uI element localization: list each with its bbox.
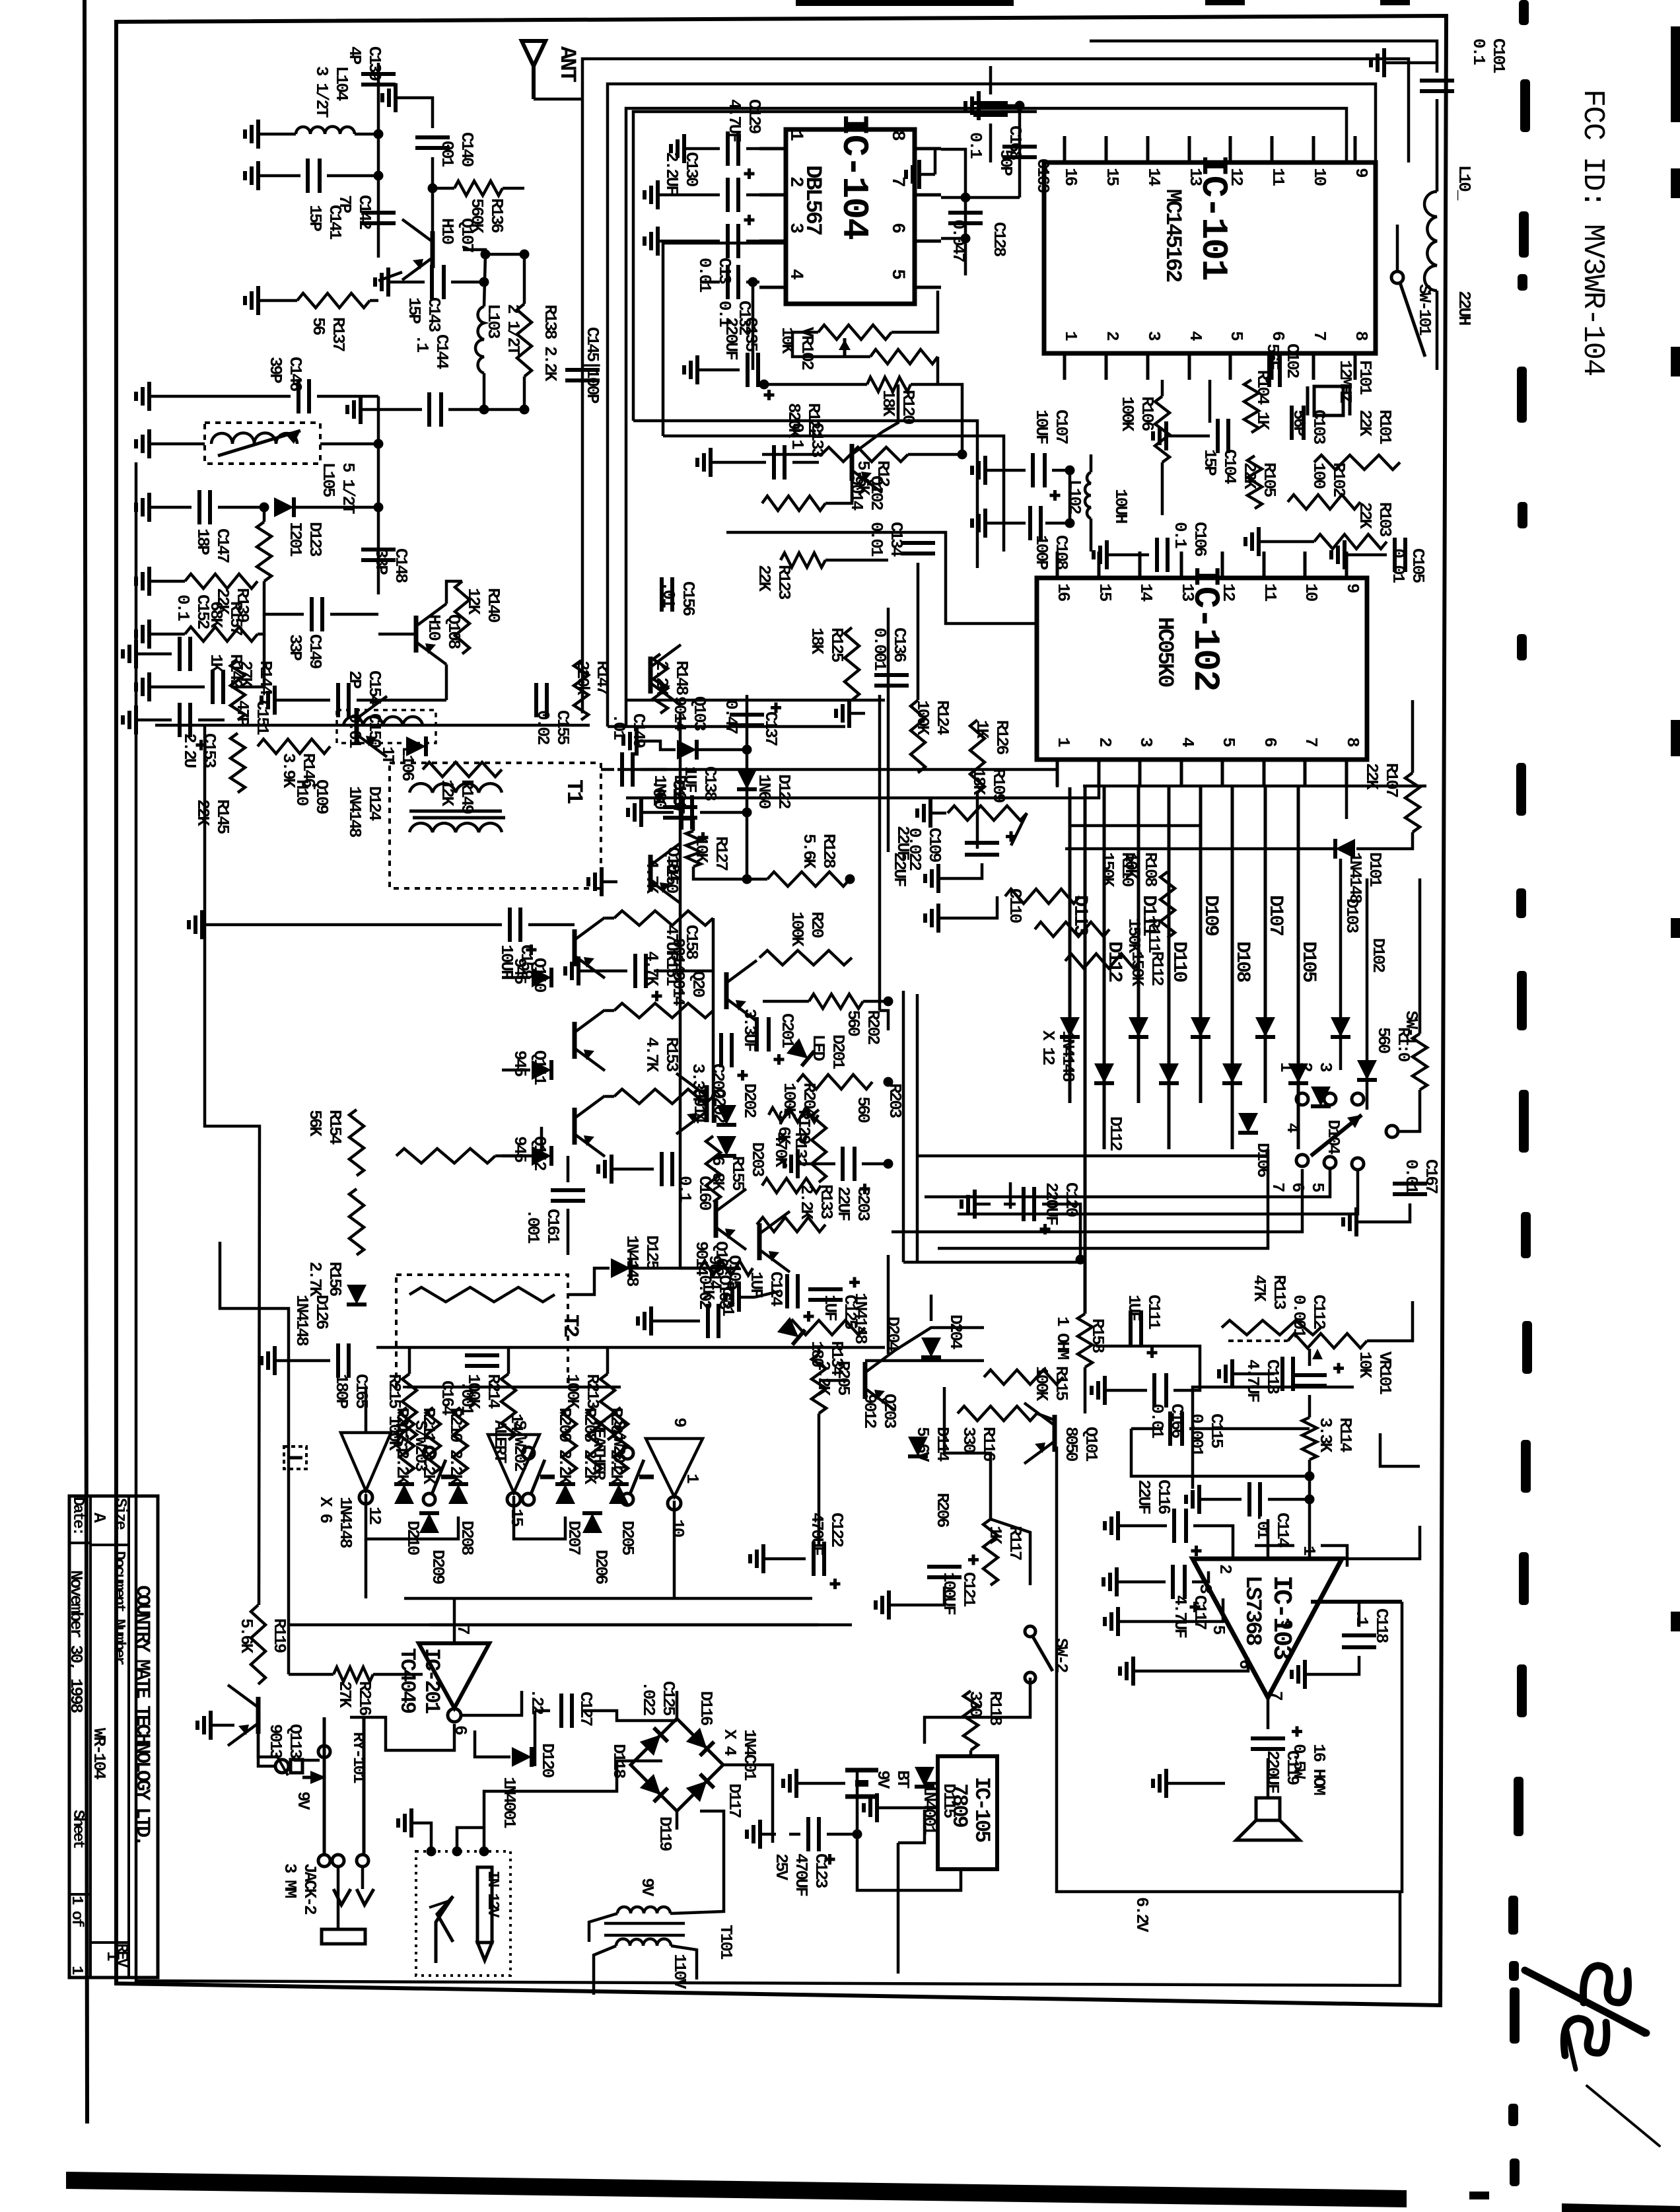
svg-text:H10: H10 bbox=[437, 218, 457, 244]
svg-text:C120: C120 bbox=[1061, 1182, 1081, 1217]
svg-text:R137: R137 bbox=[328, 317, 348, 351]
svg-text:C140: C140 bbox=[457, 132, 477, 167]
svg-text:TC4049: TC4049 bbox=[395, 1648, 419, 1713]
svg-text:16: 16 bbox=[1053, 583, 1073, 602]
svg-text:Q112: Q112 bbox=[530, 1136, 549, 1171]
svg-text:R153: R153 bbox=[662, 1037, 682, 1072]
svg-text:10UF: 10UF bbox=[1032, 410, 1051, 445]
svg-text:2P: 2P bbox=[345, 670, 365, 689]
svg-text:R156: R156 bbox=[325, 1262, 345, 1297]
svg-text:Q110: Q110 bbox=[530, 958, 549, 993]
svg-text:3.3K: 3.3K bbox=[1315, 1417, 1335, 1453]
svg-text:470UF: 470UF bbox=[807, 1513, 827, 1555]
svg-text:.001: .001 bbox=[523, 1209, 543, 1244]
svg-text:100UF: 100UF bbox=[939, 1572, 959, 1615]
svg-text:47K: 47K bbox=[1249, 1275, 1269, 1302]
svg-text:D126: D126 bbox=[312, 1295, 332, 1330]
svg-text:470UF: 470UF bbox=[791, 1853, 811, 1896]
svg-text:C134: C134 bbox=[886, 522, 906, 557]
svg-text:945: 945 bbox=[510, 1050, 530, 1077]
svg-text:33P: 33P bbox=[285, 634, 305, 660]
svg-text:R119: R119 bbox=[269, 1618, 289, 1653]
svg-text:33P: 33P bbox=[371, 548, 391, 575]
svg-text:5.6V: 5.6V bbox=[913, 1427, 932, 1462]
svg-text:R208 2.2K: R208 2.2K bbox=[580, 1408, 600, 1485]
svg-text:LS7368: LS7368 bbox=[1240, 1575, 1265, 1645]
svg-text:5.6K: 5.6K bbox=[236, 1618, 256, 1654]
svg-text:R216: R216 bbox=[355, 1681, 374, 1716]
svg-text:10K: 10K bbox=[1355, 1351, 1375, 1378]
svg-text:November 30, 1998: November 30, 1998 bbox=[66, 1570, 86, 1713]
svg-text:4: 4 bbox=[785, 269, 806, 279]
svg-text:12MHZ: 12MHZ bbox=[1335, 360, 1355, 403]
svg-text:D110: D110 bbox=[1168, 941, 1190, 982]
svg-text:C154: C154 bbox=[365, 670, 384, 705]
svg-text:Q20: Q20 bbox=[688, 971, 708, 997]
svg-text:330: 330 bbox=[959, 1427, 979, 1453]
svg-text:16: 16 bbox=[1061, 168, 1080, 186]
svg-text:4.7UF: 4.7UF bbox=[1243, 1359, 1263, 1402]
svg-text:22K: 22K bbox=[1240, 462, 1259, 489]
svg-text:D119: D119 bbox=[655, 1816, 675, 1851]
svg-text:15P: 15P bbox=[404, 297, 424, 324]
svg-text:IC-105: IC-105 bbox=[969, 1777, 994, 1842]
svg-text:C161: C161 bbox=[543, 1209, 563, 1244]
svg-text:D201: D201 bbox=[828, 1034, 848, 1069]
svg-text:22K: 22K bbox=[1355, 502, 1375, 529]
svg-text:C143: C143 bbox=[424, 297, 444, 332]
svg-text:C128: C128 bbox=[989, 222, 1009, 257]
svg-text:C112: C112 bbox=[1309, 1295, 1329, 1330]
svg-text:C129: C129 bbox=[744, 99, 764, 134]
svg-text:Document Number: Document Number bbox=[110, 1551, 127, 1665]
svg-text:C169: C169 bbox=[1033, 159, 1053, 194]
svg-text:D207: D207 bbox=[564, 1520, 584, 1555]
svg-text:Q106: Q106 bbox=[711, 1241, 731, 1276]
svg-text:R149: R149 bbox=[457, 779, 477, 814]
svg-text:X 12: X 12 bbox=[1038, 1030, 1058, 1065]
svg-text:4P: 4P bbox=[345, 46, 365, 65]
svg-text:R123: R123 bbox=[774, 565, 794, 600]
svg-text:C156: C156 bbox=[678, 581, 698, 616]
svg-text:R214: R214 bbox=[483, 1374, 503, 1409]
svg-text:100K: 100K bbox=[464, 1374, 483, 1409]
svg-text:C137: C137 bbox=[761, 711, 781, 746]
svg-text:Q111: Q111 bbox=[530, 1050, 549, 1085]
svg-text:9V: 9V bbox=[873, 1770, 893, 1789]
svg-text:C145|100P: C145|100P bbox=[582, 327, 602, 404]
svg-text:R211 2.2K: R211 2.2K bbox=[419, 1408, 438, 1485]
svg-text:7: 7 bbox=[1310, 331, 1329, 340]
svg-text:220UF: 220UF bbox=[1263, 1750, 1282, 1793]
svg-text:11: 11 bbox=[1260, 583, 1280, 602]
svg-text:10: 10 bbox=[1301, 583, 1321, 602]
svg-text:3 1/2T: 3 1/2T bbox=[312, 66, 332, 118]
svg-text:C117: C117 bbox=[1190, 1595, 1210, 1629]
svg-text:Q107: Q107 bbox=[457, 218, 477, 252]
svg-text:100P: 100P bbox=[1032, 535, 1051, 570]
svg-text:1N4148: 1N4148 bbox=[292, 1295, 312, 1346]
svg-text:22UF: 22UF bbox=[1134, 1480, 1154, 1515]
svg-text:0.5W: 0.5W bbox=[1289, 1744, 1309, 1779]
svg-text:R207 2.2K: R207 2.2K bbox=[606, 1408, 626, 1485]
svg-text:C106: C106 bbox=[1190, 522, 1210, 557]
svg-text:.1: .1 bbox=[412, 334, 432, 353]
svg-text:56F: 56F bbox=[1263, 343, 1282, 370]
svg-text:C136: C136 bbox=[890, 627, 909, 662]
svg-text:C138: C138 bbox=[700, 766, 720, 801]
svg-text:5.6K: 5.6K bbox=[853, 460, 873, 496]
svg-text:D123: D123 bbox=[305, 522, 325, 557]
svg-text:D109: D109 bbox=[1199, 895, 1222, 936]
svg-text:220k: 220k bbox=[573, 660, 592, 696]
svg-text:39P: 39P bbox=[265, 357, 285, 383]
svg-text:R205: R205 bbox=[833, 1361, 853, 1396]
svg-text:2.2UF: 2.2UF bbox=[662, 152, 682, 195]
svg-text:MC145162: MC145162 bbox=[1160, 189, 1185, 282]
svg-text:4.7UF: 4.7UF bbox=[724, 99, 744, 142]
svg-text:C122: C122 bbox=[827, 1513, 847, 1548]
svg-text:0.001: 0.001 bbox=[1187, 1413, 1207, 1456]
svg-text:16 HOM: 16 HOM bbox=[1309, 1744, 1329, 1795]
svg-text:0.02: 0.02 bbox=[533, 710, 553, 745]
svg-text:1N4148: 1N4148 bbox=[851, 1293, 870, 1344]
svg-text:22K: 22K bbox=[1355, 410, 1375, 437]
svg-text:56: 56 bbox=[308, 317, 328, 336]
svg-text:100: 100 bbox=[1309, 462, 1329, 489]
svg-text:R124: R124 bbox=[932, 700, 952, 735]
svg-text:6: 6 bbox=[887, 223, 907, 233]
svg-text:D106: D106 bbox=[1253, 1143, 1273, 1178]
svg-text:.1: .1 bbox=[1352, 1608, 1372, 1627]
svg-text:C127: C127 bbox=[576, 1692, 596, 1726]
svg-text:D206: D206 bbox=[591, 1550, 611, 1585]
svg-text:0.01: 0.01 bbox=[1388, 548, 1408, 583]
svg-text:4.7UF: 4.7UF bbox=[1170, 1595, 1190, 1638]
svg-text:0.01: 0.01 bbox=[695, 258, 715, 293]
svg-text:R133: R133 bbox=[816, 1184, 836, 1219]
svg-text:100K: 100K bbox=[563, 1374, 582, 1409]
svg-text:15P: 15P bbox=[305, 205, 325, 231]
svg-text:0.1: 0.1 bbox=[1170, 522, 1190, 548]
svg-text:Q113: Q113 bbox=[285, 1724, 305, 1759]
svg-text:L106: L106 bbox=[398, 746, 417, 781]
svg-text:220UF: 220UF bbox=[721, 317, 741, 360]
svg-text:IC-104: IC-104 bbox=[833, 114, 875, 239]
svg-text:D102: D102 bbox=[1368, 938, 1388, 973]
svg-text:D117: D117 bbox=[724, 1783, 744, 1818]
svg-text:HC05K0: HC05K0 bbox=[1152, 617, 1177, 687]
svg-text:D118: D118 bbox=[609, 1744, 629, 1779]
svg-text:12: 12 bbox=[365, 1507, 384, 1525]
svg-text:T1: T1 bbox=[561, 779, 586, 803]
svg-text:10: 10 bbox=[668, 1519, 687, 1538]
svg-text:C121: C121 bbox=[959, 1572, 979, 1607]
svg-text:C148: C148 bbox=[391, 548, 411, 583]
svg-text:R110: R110 bbox=[1117, 852, 1137, 887]
svg-text:C144: C144 bbox=[432, 334, 452, 369]
svg-text:.01: .01 bbox=[658, 581, 678, 608]
svg-text:13: 13 bbox=[1185, 168, 1205, 186]
svg-text:C13: C13 bbox=[715, 258, 734, 284]
svg-text:1N4148: 1N4148 bbox=[345, 786, 365, 838]
svg-text:R144: R144 bbox=[256, 660, 275, 696]
svg-text:D122: D122 bbox=[774, 774, 794, 809]
svg-text:100K: 100K bbox=[913, 700, 932, 736]
svg-text:R202: R202 bbox=[863, 1010, 883, 1045]
svg-text:0.1: 0.1 bbox=[1469, 38, 1488, 65]
svg-text:1 of: 1 of bbox=[67, 1896, 85, 1927]
svg-text:D112: D112 bbox=[1103, 941, 1125, 982]
svg-text:22UF: 22UF bbox=[833, 1186, 853, 1221]
svg-text:9014: 9014 bbox=[689, 1088, 709, 1124]
svg-text:C165: C165 bbox=[351, 1374, 371, 1409]
svg-text:C113: C113 bbox=[1263, 1359, 1282, 1394]
svg-text:C107: C107 bbox=[1051, 410, 1071, 444]
svg-text:10K: 10K bbox=[691, 836, 711, 863]
svg-text:9V: 9V bbox=[293, 1791, 313, 1810]
svg-text:L105: L105 bbox=[318, 462, 338, 497]
svg-text:C125: C125 bbox=[658, 1681, 678, 1716]
svg-text:C108: C108 bbox=[1051, 535, 1071, 570]
svg-text:0.1: 0.1 bbox=[675, 1176, 695, 1202]
svg-text:6.2V: 6.2V bbox=[1132, 1897, 1152, 1933]
svg-text:1N4148: 1N4148 bbox=[1345, 852, 1365, 904]
svg-text:3: 3 bbox=[785, 223, 806, 233]
svg-text:R209 2.2K: R209 2.2K bbox=[555, 1408, 575, 1485]
svg-text:9014: 9014 bbox=[668, 938, 688, 973]
svg-text:R102: R102 bbox=[1329, 462, 1348, 497]
svg-text:15: 15 bbox=[1102, 168, 1122, 186]
svg-text:R138 2.2K: R138 2.2K bbox=[540, 304, 560, 382]
svg-text:C153: C153 bbox=[199, 733, 219, 768]
svg-text:R106: R106 bbox=[1137, 396, 1157, 431]
svg-text:LED: LED bbox=[808, 1034, 828, 1061]
svg-text:C109: C109 bbox=[925, 828, 944, 863]
svg-text:X 6: X 6 bbox=[316, 1497, 335, 1523]
svg-text:IC-201: IC-201 bbox=[419, 1648, 444, 1713]
svg-text:L104: L104 bbox=[332, 66, 351, 101]
svg-text:R210 2.2K: R210 2.2K bbox=[446, 1408, 466, 1485]
svg-text:2.2K: 2.2K bbox=[814, 1361, 833, 1396]
svg-text:R105: R105 bbox=[1259, 462, 1279, 497]
svg-text:18K: 18K bbox=[807, 627, 827, 655]
svg-text:IN 12V: IN 12V bbox=[483, 1871, 501, 1918]
svg-text:0.01: 0.01 bbox=[1401, 1159, 1421, 1194]
svg-text:R126: R126 bbox=[992, 720, 1012, 755]
svg-text:9013: 9013 bbox=[265, 1724, 285, 1759]
svg-text:25V: 25V bbox=[771, 1853, 791, 1880]
svg-text:R113: R113 bbox=[1269, 1275, 1289, 1310]
svg-text:C152: C152 bbox=[193, 594, 213, 629]
svg-text:1 OHM: 1 OHM bbox=[1053, 1316, 1072, 1359]
svg-text:1N60: 1N60 bbox=[650, 775, 670, 810]
svg-text:18P: 18P bbox=[193, 528, 213, 555]
svg-text:WR-104: WR-104 bbox=[89, 1728, 109, 1779]
svg-text:C155: C155 bbox=[553, 710, 573, 745]
svg-text:R148: R148 bbox=[672, 660, 691, 696]
svg-text:9V: 9V bbox=[637, 1878, 657, 1897]
svg-text:1UF: 1UF bbox=[820, 1295, 840, 1321]
svg-text:470K: 470K bbox=[771, 1132, 790, 1168]
svg-text:1T: 1T bbox=[378, 746, 398, 765]
svg-text:22K: 22K bbox=[193, 799, 213, 826]
svg-text:2.2K: 2.2K bbox=[796, 1184, 816, 1220]
svg-text:R136: R136 bbox=[487, 198, 507, 233]
svg-text:D125: D125 bbox=[642, 1235, 662, 1270]
svg-text:0.01: 0.01 bbox=[1147, 1404, 1167, 1439]
svg-text:R107: R107 bbox=[1382, 763, 1401, 797]
svg-text:IC-103: IC-103 bbox=[1266, 1575, 1296, 1659]
svg-text:R12: R12 bbox=[873, 460, 893, 487]
svg-text:R206: R206 bbox=[932, 1493, 952, 1528]
svg-text:R145: R145 bbox=[213, 799, 232, 834]
svg-text:L102: L102 bbox=[1065, 480, 1084, 515]
svg-text:14: 14 bbox=[1144, 168, 1164, 186]
svg-text:1N4001: 1N4001 bbox=[499, 1777, 519, 1828]
svg-text:2.2K: 2.2K bbox=[652, 660, 672, 696]
svg-text:560: 560 bbox=[843, 1010, 863, 1036]
svg-text:0.1: 0.1 bbox=[965, 132, 985, 159]
svg-text:C102: C102 bbox=[1282, 343, 1302, 378]
svg-text:18K: 18K bbox=[969, 768, 989, 795]
svg-text:Q109: Q109 bbox=[312, 779, 332, 814]
svg-text:9014: 9014 bbox=[668, 971, 688, 1006]
svg-text:R132: R132 bbox=[790, 1132, 810, 1167]
svg-text:27K: 27K bbox=[236, 660, 256, 688]
svg-text:D103: D103 bbox=[1342, 898, 1362, 933]
svg-text:D202: D202 bbox=[740, 1083, 759, 1118]
svg-text:.001: .001 bbox=[437, 132, 457, 167]
svg-text:FCC ID: MV3WR-104: FCC ID: MV3WR-104 bbox=[1576, 89, 1609, 376]
svg-text:ANT: ANT bbox=[554, 46, 579, 83]
svg-text:3.3UF: 3.3UF bbox=[740, 1009, 759, 1052]
svg-text:12K: 12K bbox=[437, 779, 457, 806]
svg-text:D112: D112 bbox=[1105, 1116, 1125, 1151]
svg-text:SW-101: SW-101 bbox=[1415, 284, 1434, 336]
svg-text:3 MM: 3 MM bbox=[280, 1863, 300, 1898]
svg-text:C124: C124 bbox=[766, 1271, 786, 1306]
svg-text:C123: C123 bbox=[811, 1853, 831, 1888]
svg-text:D111: D111 bbox=[1137, 895, 1160, 936]
svg-text:I201: I201 bbox=[285, 522, 305, 557]
svg-text:JACK-2: JACK-2 bbox=[300, 1863, 320, 1915]
svg-text:10UH: 10UH bbox=[1111, 489, 1131, 523]
svg-text:Q101: Q101 bbox=[1081, 1427, 1101, 1462]
svg-text:11: 11 bbox=[1268, 168, 1288, 186]
svg-text:1K: 1K bbox=[698, 1281, 718, 1301]
svg-text:0.1: 0.1 bbox=[173, 594, 193, 621]
svg-text:C203: C203 bbox=[853, 1186, 873, 1221]
svg-text:D108: D108 bbox=[1231, 941, 1253, 982]
svg-text:12K: 12K bbox=[464, 588, 483, 615]
svg-text:R112: R112 bbox=[1147, 951, 1167, 986]
svg-text:0.001: 0.001 bbox=[1289, 1295, 1309, 1338]
svg-text:10: 10 bbox=[1310, 168, 1329, 186]
svg-text:R125: R125 bbox=[827, 627, 847, 662]
svg-text:1: 1 bbox=[785, 130, 806, 141]
svg-text:C201: C201 bbox=[777, 1013, 797, 1048]
svg-text:SW-2: SW-2 bbox=[1051, 1638, 1071, 1673]
svg-text:100K: 100K bbox=[1032, 1366, 1051, 1402]
svg-text:C114: C114 bbox=[1273, 1513, 1292, 1548]
svg-text:D116: D116 bbox=[696, 1691, 716, 1726]
svg-text:9014: 9014 bbox=[691, 1241, 711, 1276]
svg-text:0.01: 0.01 bbox=[866, 522, 886, 557]
svg-text:RY-101: RY-101 bbox=[349, 1732, 368, 1783]
svg-text:Sheet: Sheet bbox=[69, 1810, 87, 1849]
svg-text:C104: C104 bbox=[1220, 449, 1240, 484]
svg-text:R127: R127 bbox=[711, 836, 731, 871]
svg-text:D205: D205 bbox=[617, 1520, 637, 1555]
svg-text:14: 14 bbox=[1136, 583, 1156, 602]
svg-text:560: 560 bbox=[1374, 1027, 1393, 1053]
svg-text:7: 7 bbox=[1301, 737, 1321, 746]
svg-text:R212 2.2K: R212 2.2K bbox=[392, 1408, 412, 1485]
svg-text:1N4148: 1N4148 bbox=[335, 1497, 355, 1548]
svg-text:Size: Size bbox=[111, 1498, 129, 1530]
svg-text:13: 13 bbox=[1177, 583, 1197, 602]
svg-text:560: 560 bbox=[853, 1096, 873, 1123]
svg-text:D203: D203 bbox=[748, 1142, 767, 1177]
svg-text:2.7K: 2.7K bbox=[305, 1262, 325, 1297]
svg-text:150K: 150K bbox=[1098, 852, 1117, 888]
svg-text:R213: R213 bbox=[582, 1374, 602, 1409]
svg-text:D114: D114 bbox=[932, 1427, 952, 1462]
svg-text:VR101: VR101 bbox=[1375, 1351, 1395, 1394]
svg-text:T2: T2 bbox=[558, 1314, 582, 1337]
svg-text:14: 14 bbox=[507, 1413, 526, 1432]
svg-text:C135: C135 bbox=[741, 317, 761, 352]
svg-text:R155: R155 bbox=[728, 1156, 748, 1191]
svg-text:D120: D120 bbox=[538, 1743, 557, 1778]
svg-text:R147: R147 bbox=[592, 660, 612, 695]
svg-text:H10: H10 bbox=[292, 779, 312, 806]
svg-text:C105: C105 bbox=[1408, 548, 1428, 583]
svg-text:1K: 1K bbox=[985, 1526, 1005, 1545]
svg-text:0.47: 0.47 bbox=[721, 699, 741, 734]
svg-text:2: 2 bbox=[785, 176, 806, 187]
svg-text:56K: 56K bbox=[305, 1110, 325, 1137]
svg-text:1N4148: 1N4148 bbox=[622, 1235, 642, 1287]
svg-text:15: 15 bbox=[1095, 583, 1115, 602]
svg-text:27K: 27K bbox=[335, 1681, 355, 1708]
svg-text:8: 8 bbox=[887, 130, 907, 141]
svg-text:2.2U: 2.2U bbox=[180, 733, 199, 767]
svg-text:C118: C118 bbox=[1372, 1608, 1391, 1643]
svg-text:1K: 1K bbox=[972, 720, 992, 739]
svg-text:1N60: 1N60 bbox=[754, 774, 774, 809]
svg-text:R118: R118 bbox=[985, 1691, 1005, 1726]
svg-text:F101: F101 bbox=[1355, 360, 1375, 395]
svg-text:C147: C147 bbox=[213, 528, 232, 563]
svg-text:L10_: L10_ bbox=[1454, 165, 1474, 201]
svg-text:C115: C115 bbox=[1207, 1413, 1226, 1448]
svg-text:D124: D124 bbox=[365, 786, 384, 821]
svg-text:R140: R140 bbox=[483, 588, 503, 623]
svg-text:945: 945 bbox=[510, 958, 530, 984]
svg-text:7P: 7P bbox=[335, 195, 355, 213]
svg-text:12: 12 bbox=[1218, 583, 1238, 602]
svg-text:100K: 100K bbox=[779, 1083, 799, 1118]
svg-text:180P: 180P bbox=[332, 1374, 351, 1409]
svg-text:D208: D208 bbox=[457, 1520, 477, 1555]
svg-text:5.6K: 5.6K bbox=[799, 834, 819, 869]
svg-text:0.022: 0.022 bbox=[905, 828, 925, 871]
svg-text:D107: D107 bbox=[1264, 895, 1286, 935]
svg-text:18K: 18K bbox=[878, 390, 898, 417]
svg-text:9012: 9012 bbox=[860, 1394, 880, 1429]
